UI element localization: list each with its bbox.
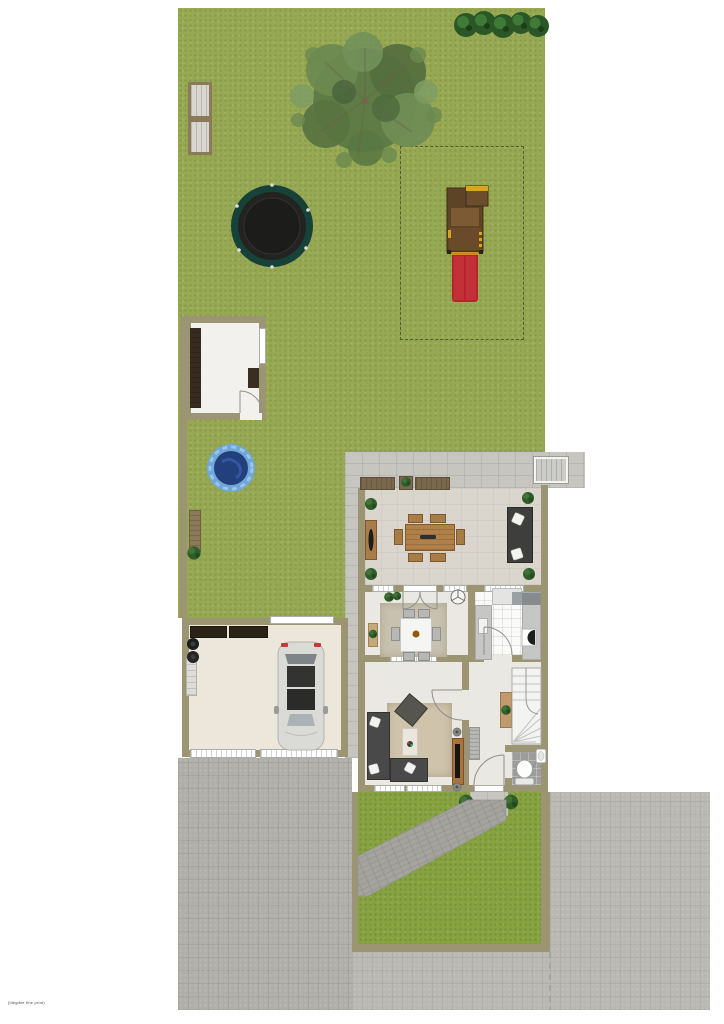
- tree: [290, 32, 442, 168]
- toilet: [515, 760, 534, 785]
- shed-door: [240, 391, 262, 413]
- car: [274, 642, 328, 750]
- speakers: [453, 728, 461, 791]
- ceiling-fan-icon: [451, 589, 465, 604]
- plan-vector-overlay: [0, 0, 724, 1024]
- bathroom-sink: [536, 749, 546, 763]
- table-decor: [369, 529, 437, 747]
- french-door-right: [420, 592, 437, 609]
- play-structure: [447, 186, 488, 302]
- tree-trunk: [362, 98, 368, 104]
- french-door-left: [403, 592, 420, 609]
- trampoline: [231, 183, 313, 269]
- hedge-row: [454, 11, 549, 38]
- garden-bush: [187, 546, 200, 559]
- front-path: [358, 800, 506, 896]
- cushions: [368, 512, 524, 774]
- living-room-door: [432, 690, 462, 720]
- watermark-text: (illegible fine print): [8, 1000, 45, 1005]
- front-door: [474, 755, 504, 785]
- garage-bins: [187, 638, 199, 663]
- oven: [522, 629, 536, 646]
- kiddie-pool: [207, 444, 255, 492]
- kitchen-door: [484, 627, 512, 655]
- winder-staircase: [512, 668, 541, 744]
- site-plan: (illegible fine print): [0, 0, 724, 1024]
